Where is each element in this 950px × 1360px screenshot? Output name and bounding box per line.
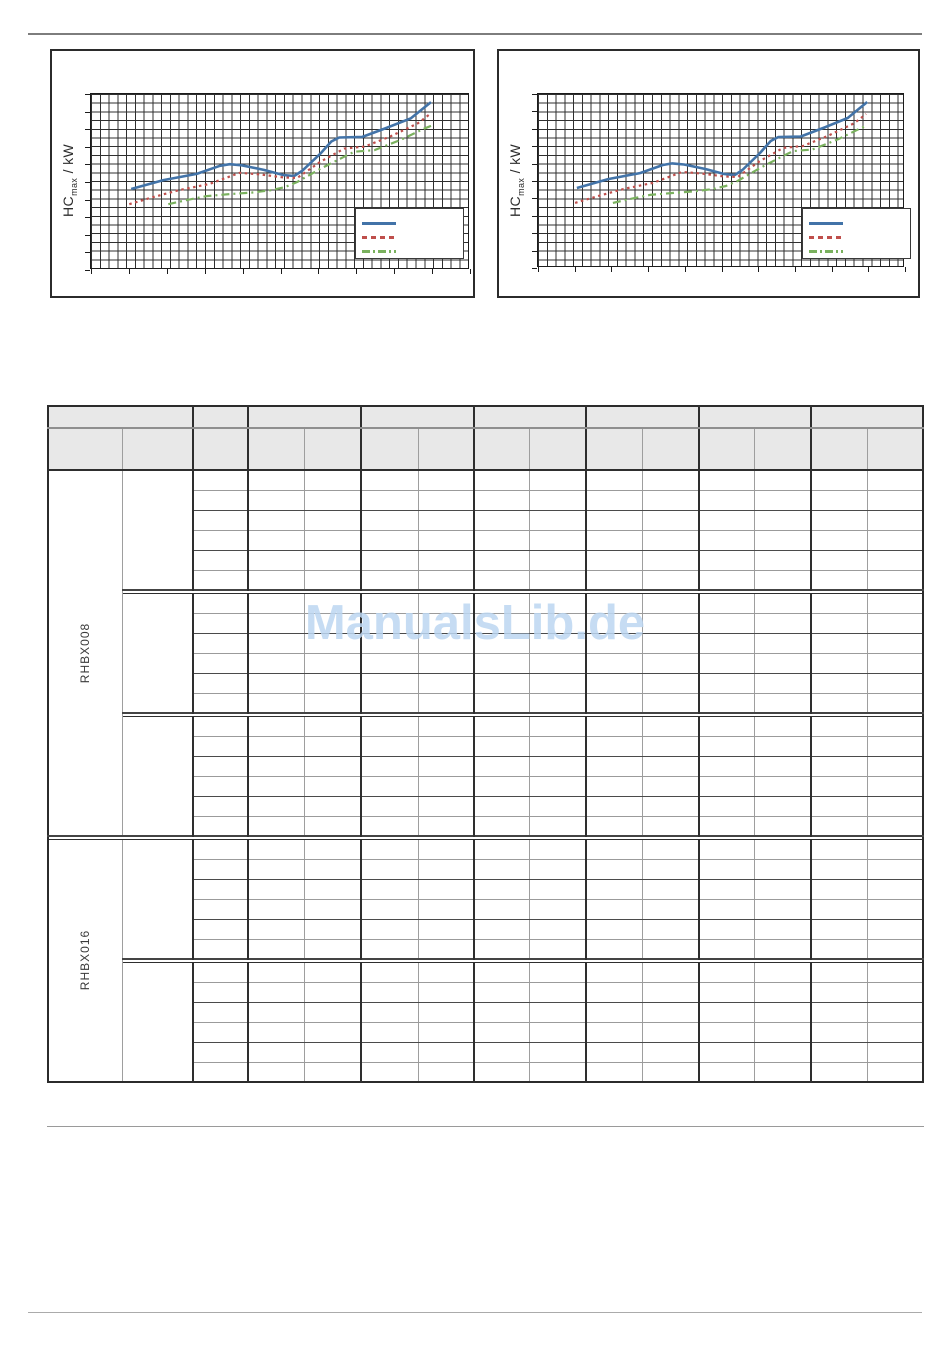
data-cell <box>754 570 811 590</box>
data-cell <box>642 839 699 859</box>
data-cell <box>304 796 361 816</box>
data-cell <box>248 1022 304 1042</box>
data-cell <box>474 570 529 590</box>
data-cell <box>361 593 418 613</box>
data-cell <box>304 1062 361 1082</box>
data-cell <box>529 839 586 859</box>
data-cell <box>248 550 304 570</box>
legend-line-sample-dashdot <box>362 250 396 253</box>
data-cell <box>474 490 529 510</box>
data-cell <box>361 1062 418 1082</box>
data-cell <box>811 736 867 756</box>
data-cell <box>248 1002 304 1022</box>
y-axis-tick <box>532 216 537 217</box>
y-axis-tick <box>532 111 537 112</box>
data-cell <box>361 1042 418 1062</box>
data-cell <box>642 879 699 899</box>
chart-hcmax-right: HCmax / kW <box>497 49 920 298</box>
data-cell <box>248 839 304 859</box>
data-cell <box>304 919 361 939</box>
data-cell <box>248 939 304 959</box>
data-cell <box>193 1042 248 1062</box>
data-cell <box>754 796 811 816</box>
data-cell <box>193 593 248 613</box>
data-cell <box>474 756 529 776</box>
data-cell <box>586 899 642 919</box>
header-column-cell <box>361 428 418 470</box>
subgroup-label-cell <box>122 716 193 836</box>
data-cell <box>418 653 474 673</box>
data-cell <box>754 510 811 530</box>
data-cell <box>418 593 474 613</box>
data-cell <box>754 1062 811 1082</box>
data-cell <box>304 593 361 613</box>
data-cell <box>474 982 529 1002</box>
y-axis-label-sub: max <box>69 177 79 195</box>
data-cell <box>699 1022 754 1042</box>
data-cell <box>754 962 811 982</box>
data-cell <box>754 530 811 550</box>
y-axis-tick <box>532 129 537 130</box>
data-cell <box>418 570 474 590</box>
data-cell <box>304 550 361 570</box>
data-cell <box>361 550 418 570</box>
data-cell <box>474 1022 529 1042</box>
header-column-cell <box>248 428 304 470</box>
data-cell <box>304 613 361 633</box>
data-cell <box>304 879 361 899</box>
data-cell <box>193 1022 248 1042</box>
data-cell <box>304 859 361 879</box>
data-cell <box>811 673 867 693</box>
table-row: RHBX008 <box>48 470 923 490</box>
data-cell <box>699 470 754 490</box>
data-cell <box>418 716 474 736</box>
y-axis-tick <box>85 112 90 113</box>
data-cell <box>867 982 923 1002</box>
x-axis-tick <box>318 269 319 274</box>
legend-line-sample-dashdot <box>809 250 843 253</box>
data-cell <box>304 736 361 756</box>
data-cell <box>248 919 304 939</box>
header-column-cell <box>418 428 474 470</box>
data-cell <box>699 490 754 510</box>
data-cell <box>248 776 304 796</box>
data-cell <box>529 673 586 693</box>
data-cell <box>586 776 642 796</box>
data-cell <box>248 962 304 982</box>
data-cell <box>699 796 754 816</box>
data-cell <box>529 879 586 899</box>
data-cell <box>642 693 699 713</box>
data-cell <box>248 593 304 613</box>
data-cell <box>754 613 811 633</box>
data-cell <box>811 899 867 919</box>
data-cell <box>811 982 867 1002</box>
header-column-row <box>48 428 923 470</box>
data-cell <box>699 530 754 550</box>
data-cell <box>529 776 586 796</box>
data-cell <box>642 776 699 796</box>
data-cell <box>867 613 923 633</box>
data-cell <box>193 716 248 736</box>
data-cell <box>418 490 474 510</box>
data-cell <box>642 962 699 982</box>
data-cell <box>754 593 811 613</box>
data-cell <box>418 1042 474 1062</box>
data-cell <box>474 796 529 816</box>
data-cell <box>248 490 304 510</box>
data-cell <box>811 693 867 713</box>
data-cell <box>418 756 474 776</box>
y-axis-tick <box>532 94 537 95</box>
data-cell <box>811 1022 867 1042</box>
device-label: RHBX008 <box>78 623 92 683</box>
data-cell <box>867 490 923 510</box>
data-cell <box>811 633 867 653</box>
data-cell <box>304 1022 361 1042</box>
data-cell <box>418 470 474 490</box>
data-cell <box>586 939 642 959</box>
y-axis-label-text: HCmax / kW <box>61 143 80 216</box>
data-cell <box>529 593 586 613</box>
data-cell <box>474 1062 529 1082</box>
series-line-green-dashdot <box>613 126 867 203</box>
data-cell <box>193 839 248 859</box>
spec-table: RHBX008RHBX016 <box>47 405 924 1083</box>
manual-page: { "colors": { "series_blue": "#4273a8", … <box>0 0 950 1360</box>
data-cell <box>418 796 474 816</box>
data-cell <box>361 693 418 713</box>
data-cell <box>304 490 361 510</box>
data-cell <box>867 839 923 859</box>
data-cell <box>474 613 529 633</box>
header-column-cell <box>867 428 923 470</box>
data-cell <box>361 859 418 879</box>
data-cell <box>642 550 699 570</box>
y-axis-label-unit: / kW <box>508 143 524 177</box>
chart-legend <box>802 208 911 259</box>
data-cell <box>474 939 529 959</box>
x-axis-tick <box>648 267 649 272</box>
data-cell <box>304 756 361 776</box>
data-cell <box>474 530 529 550</box>
data-cell <box>361 633 418 653</box>
header-column-cell <box>529 428 586 470</box>
y-axis-tick <box>85 164 90 165</box>
data-cell <box>699 1062 754 1082</box>
header-group-row <box>48 406 923 428</box>
header-group-cell <box>474 406 586 428</box>
data-cell <box>193 530 248 550</box>
data-cell <box>811 653 867 673</box>
y-axis-label-text: HCmax / kW <box>508 143 527 216</box>
x-axis-tick <box>722 267 723 272</box>
y-axis-label-unit: / kW <box>61 143 77 177</box>
data-cell <box>867 919 923 939</box>
data-cell <box>193 1002 248 1022</box>
spec-table-head <box>48 406 923 470</box>
data-cell <box>304 1002 361 1022</box>
header-group-cell <box>586 406 699 428</box>
data-cell <box>529 570 586 590</box>
data-cell <box>699 653 754 673</box>
data-cell <box>418 982 474 1002</box>
data-cell <box>754 490 811 510</box>
data-cell <box>193 470 248 490</box>
data-cell <box>474 1002 529 1022</box>
data-cell <box>304 776 361 796</box>
data-cell <box>193 1062 248 1082</box>
y-axis-tick <box>85 200 90 201</box>
x-axis-tick <box>129 269 130 274</box>
data-cell <box>193 550 248 570</box>
x-axis-tick <box>685 267 686 272</box>
data-cell <box>361 530 418 550</box>
data-cell <box>248 1062 304 1082</box>
data-cell <box>361 510 418 530</box>
spec-table-body: RHBX008RHBX016 <box>48 470 923 1082</box>
y-axis-tick <box>532 251 537 252</box>
data-cell <box>529 470 586 490</box>
data-cell <box>586 470 642 490</box>
data-cell <box>586 1062 642 1082</box>
data-cell <box>699 879 754 899</box>
data-cell <box>529 796 586 816</box>
data-cell <box>867 633 923 653</box>
data-cell <box>642 982 699 1002</box>
data-cell <box>867 593 923 613</box>
data-cell <box>867 1062 923 1082</box>
data-cell <box>474 736 529 756</box>
data-cell <box>811 816 867 836</box>
data-cell <box>193 962 248 982</box>
y-axis-label-main: HC <box>61 196 77 217</box>
data-cell <box>586 839 642 859</box>
data-cell <box>754 550 811 570</box>
data-cell <box>474 593 529 613</box>
data-cell <box>586 1002 642 1022</box>
data-cell <box>474 693 529 713</box>
device-label: RHBX016 <box>78 930 92 990</box>
data-cell <box>361 756 418 776</box>
data-cell <box>248 510 304 530</box>
data-cell <box>642 796 699 816</box>
data-cell <box>586 1042 642 1062</box>
data-cell <box>193 756 248 776</box>
data-cell <box>418 613 474 633</box>
legend-item-red-dotted <box>809 230 910 244</box>
data-cell <box>529 693 586 713</box>
subgroup-label-cell <box>122 839 193 959</box>
legend-item-green-dashdot <box>362 244 463 258</box>
header-column-cell <box>48 428 122 470</box>
data-cell <box>867 1002 923 1022</box>
data-cell <box>529 510 586 530</box>
data-cell <box>304 653 361 673</box>
data-cell <box>474 859 529 879</box>
y-axis-tick <box>85 182 90 183</box>
data-cell <box>529 899 586 919</box>
header-group-cell <box>248 406 361 428</box>
data-cell <box>699 1002 754 1022</box>
data-cell <box>529 816 586 836</box>
data-cell <box>811 570 867 590</box>
data-cell <box>304 962 361 982</box>
data-cell <box>418 693 474 713</box>
data-cell <box>699 899 754 919</box>
table-row <box>48 593 923 613</box>
data-cell <box>811 1002 867 1022</box>
data-cell <box>699 919 754 939</box>
data-cell <box>699 693 754 713</box>
data-cell <box>304 470 361 490</box>
data-cell <box>248 716 304 736</box>
data-cell <box>699 613 754 633</box>
y-axis-tick <box>532 268 537 269</box>
y-axis-tick <box>85 252 90 253</box>
data-cell <box>474 776 529 796</box>
data-cell <box>361 899 418 919</box>
data-cell <box>361 470 418 490</box>
data-cell <box>699 1042 754 1062</box>
data-cell <box>642 470 699 490</box>
data-cell <box>867 796 923 816</box>
data-cell <box>361 939 418 959</box>
data-cell <box>754 716 811 736</box>
data-cell <box>586 550 642 570</box>
data-cell <box>418 1022 474 1042</box>
data-cell <box>529 939 586 959</box>
data-cell <box>642 633 699 653</box>
y-axis-tick <box>85 129 90 130</box>
data-cell <box>193 673 248 693</box>
data-cell <box>361 1022 418 1042</box>
data-cell <box>754 633 811 653</box>
data-cell <box>304 530 361 550</box>
subgroup-label-cell <box>122 962 193 1082</box>
data-cell <box>811 1042 867 1062</box>
data-cell <box>642 816 699 836</box>
x-axis-tick <box>243 269 244 274</box>
data-cell <box>529 530 586 550</box>
header-column-cell <box>304 428 361 470</box>
data-cell <box>642 1042 699 1062</box>
chart-hcmax-left: HCmax / kW <box>50 49 475 298</box>
data-cell <box>529 919 586 939</box>
y-axis-label-sub: max <box>516 177 526 195</box>
data-cell <box>754 756 811 776</box>
data-cell <box>529 490 586 510</box>
x-axis-tick <box>868 267 869 272</box>
data-cell <box>361 673 418 693</box>
y-axis-tick <box>85 147 90 148</box>
data-cell <box>418 899 474 919</box>
data-cell <box>754 939 811 959</box>
table-row <box>48 962 923 982</box>
data-cell <box>586 1022 642 1042</box>
data-cell <box>193 899 248 919</box>
data-cell <box>642 593 699 613</box>
data-cell <box>418 673 474 693</box>
data-cell <box>193 633 248 653</box>
table-row: RHBX016 <box>48 839 923 859</box>
data-cell <box>586 510 642 530</box>
y-axis-tick <box>532 146 537 147</box>
data-cell <box>586 816 642 836</box>
data-cell <box>474 633 529 653</box>
data-cell <box>754 839 811 859</box>
data-cell <box>529 653 586 673</box>
data-cell <box>586 570 642 590</box>
data-cell <box>193 613 248 633</box>
data-cell <box>811 839 867 859</box>
data-cell <box>811 962 867 982</box>
y-axis-label: HCmax / kW <box>54 93 86 267</box>
data-cell <box>418 1002 474 1022</box>
data-cell <box>529 859 586 879</box>
header-column-cell <box>642 428 699 470</box>
page-bottom-rule <box>28 1312 922 1313</box>
data-cell <box>361 1002 418 1022</box>
data-cell <box>642 1022 699 1042</box>
data-cell <box>304 673 361 693</box>
legend-line-sample-solid <box>809 222 843 225</box>
x-axis-tick <box>281 269 282 274</box>
table-underline <box>47 1126 924 1127</box>
data-cell <box>586 962 642 982</box>
y-axis-tick <box>85 270 90 271</box>
data-cell <box>193 982 248 1002</box>
header-column-cell <box>699 428 754 470</box>
data-cell <box>699 982 754 1002</box>
data-cell <box>361 490 418 510</box>
data-cell <box>474 879 529 899</box>
data-cell <box>586 613 642 633</box>
data-cell <box>586 673 642 693</box>
header-group-cell <box>193 406 248 428</box>
header-group-cell <box>811 406 923 428</box>
data-cell <box>867 716 923 736</box>
data-cell <box>811 756 867 776</box>
data-cell <box>361 839 418 859</box>
x-axis-tick <box>795 267 796 272</box>
data-cell <box>474 839 529 859</box>
data-cell <box>754 653 811 673</box>
data-cell <box>586 796 642 816</box>
data-cell <box>529 633 586 653</box>
data-cell <box>248 530 304 550</box>
data-cell <box>248 633 304 653</box>
data-cell <box>586 756 642 776</box>
data-cell <box>699 716 754 736</box>
data-cell <box>193 796 248 816</box>
x-axis-tick <box>205 269 206 274</box>
subgroup-label-cell <box>122 470 193 590</box>
data-cell <box>642 490 699 510</box>
data-cell <box>304 510 361 530</box>
data-cell <box>642 919 699 939</box>
data-cell <box>867 879 923 899</box>
data-cell <box>529 1002 586 1022</box>
data-cell <box>699 962 754 982</box>
data-cell <box>418 939 474 959</box>
data-cell <box>699 839 754 859</box>
data-cell <box>811 613 867 633</box>
data-cell <box>304 716 361 736</box>
data-cell <box>811 470 867 490</box>
header-column-cell <box>122 428 193 470</box>
